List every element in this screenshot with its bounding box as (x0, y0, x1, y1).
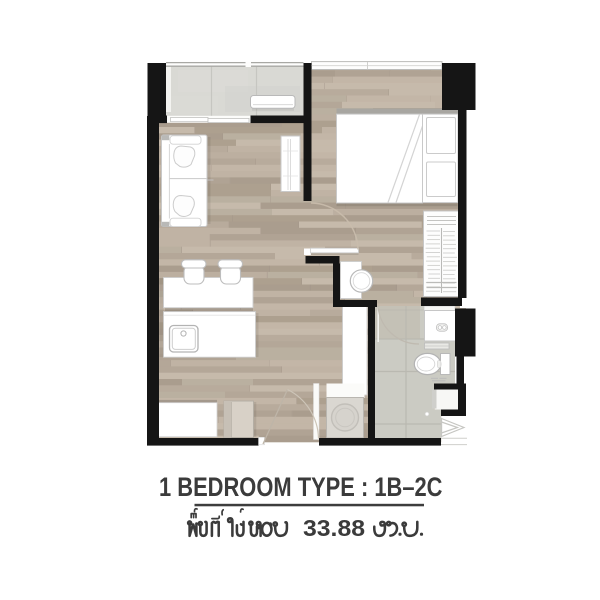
svg-text:33.88: 33.88 (303, 515, 365, 541)
svg-text:1 BEDROOM TYPE : 1B–2C: 1 BEDROOM TYPE : 1B–2C (159, 472, 443, 502)
